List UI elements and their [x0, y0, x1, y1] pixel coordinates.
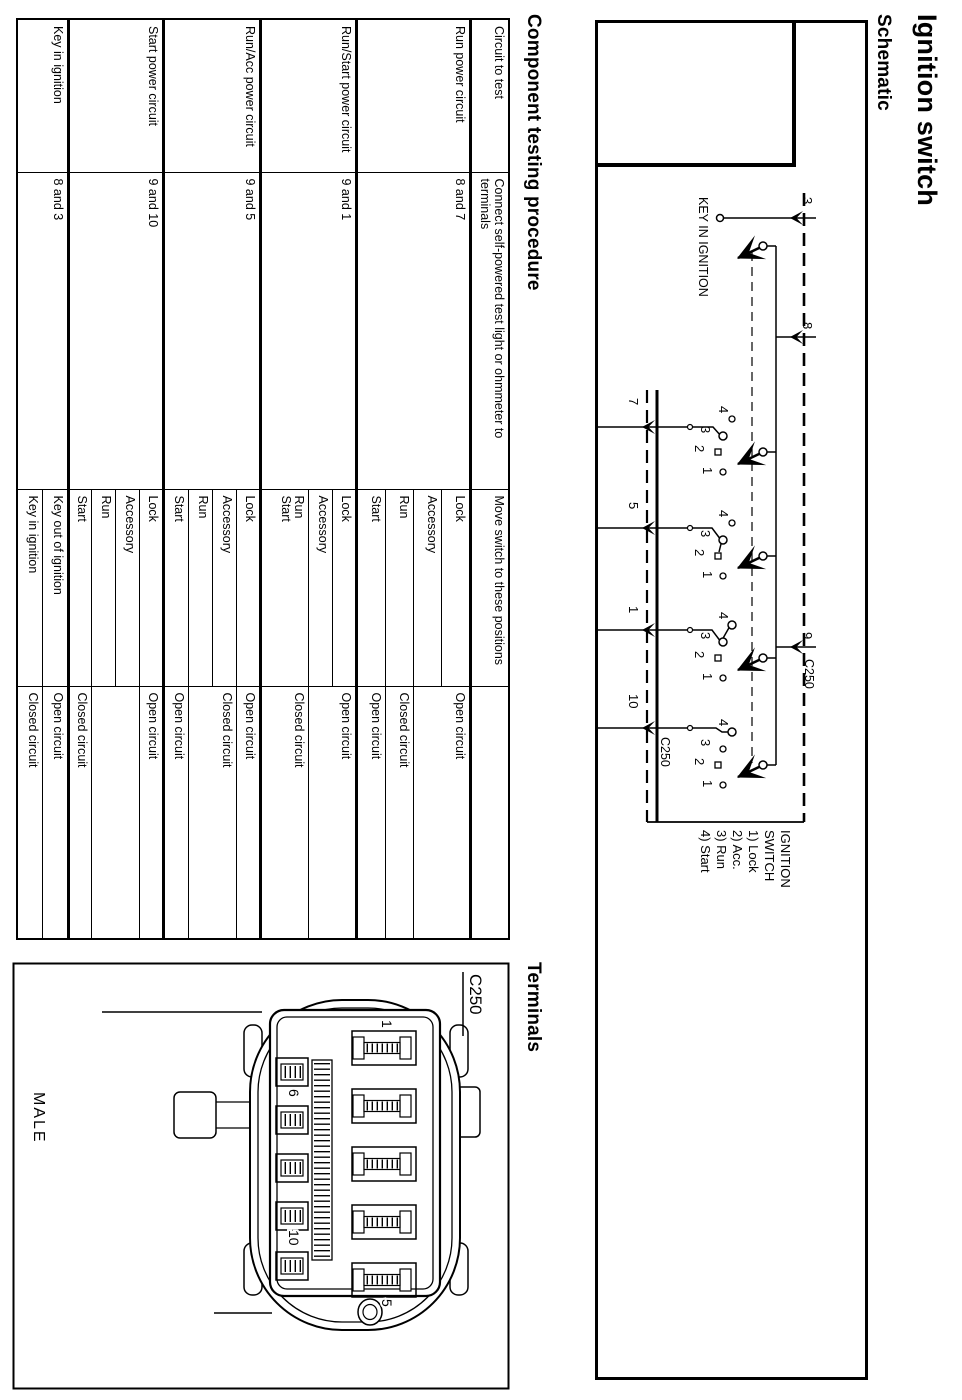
- position-cell: Accessory: [213, 489, 237, 686]
- ignition-switch-schematic: 3 8 9 C250 KEY IN IGNITION 7: [595, 20, 868, 1380]
- switch-wafer-run: 7 4 3 2 1: [597, 398, 767, 475]
- result-cell: Open circuit: [357, 686, 386, 939]
- circuit-cell: Run/Acc power circuit: [164, 19, 261, 172]
- terminal-5-label: 5: [626, 502, 641, 509]
- result-cell: Open circuit: [237, 686, 261, 939]
- contact-1-label: 1: [700, 571, 715, 578]
- contact-2-label: 2: [692, 758, 707, 765]
- key-in-ignition-label: KEY IN IGNITION: [696, 197, 710, 297]
- position-line: Run: [292, 496, 306, 681]
- result-cell: Closed circuit: [386, 686, 414, 939]
- contact-4-label: 4: [716, 719, 731, 726]
- gender-label: MALE: [30, 1092, 47, 1144]
- terminal-3: 3: [717, 197, 817, 225]
- internal-bus: [767, 246, 776, 765]
- position-cell: Key in ignition: [17, 489, 43, 686]
- switch-wafer-run-start: 1 4 3 2 1: [597, 606, 767, 681]
- circuit-cell: Run/Start power circuit: [261, 19, 357, 172]
- position-line: Start: [278, 496, 292, 681]
- legend-start: 4) Start: [698, 830, 713, 873]
- legend-acc: 2) Acc.: [730, 830, 745, 870]
- result-cell: Open circuit: [140, 686, 164, 939]
- switch-position-legend: IGNITION SWITCH 1) Lock 2) Acc. 3) Run 4…: [698, 830, 793, 888]
- contact-2-label: 2: [692, 445, 707, 452]
- connector-label-bottom: C250: [658, 737, 672, 767]
- position-cell: Key out of ignition: [43, 489, 69, 686]
- position-cell: Run: [92, 489, 116, 686]
- contact-2-label: 2: [692, 651, 707, 658]
- col-header-circuit: Circuit to test: [471, 19, 509, 172]
- result-cell: Closed circuit: [17, 686, 43, 939]
- terminals-cell: 9 and 1: [261, 172, 357, 489]
- terminal-8-label: 8: [800, 322, 815, 329]
- terminal-9: 9 C250: [776, 632, 816, 689]
- switch-wafer-run-acc: 5 4 3 2 1: [597, 502, 767, 579]
- component-testing-table: Circuit to test Connect self-powered tes…: [16, 18, 510, 940]
- feed-wire: [597, 20, 794, 165]
- result-cell: Open circuit: [164, 686, 189, 939]
- legend-line: SWITCH: [762, 830, 777, 881]
- terminal-center-band: [312, 1060, 332, 1260]
- pin-5-label: 5: [379, 1299, 395, 1307]
- position-cell: Lock: [333, 489, 357, 686]
- contact-4-label: 4: [716, 406, 731, 413]
- col-header-result: [471, 686, 509, 939]
- position-cell: Accessory: [414, 489, 442, 686]
- contact-3-label: 3: [698, 632, 713, 639]
- terminals-cell: 8 and 3: [17, 172, 69, 489]
- circuit-cell: Key in ignition: [17, 19, 69, 172]
- position-cell: Start: [164, 489, 189, 686]
- terminal-1-label: 1: [626, 606, 641, 613]
- result-cell: [92, 686, 140, 939]
- position-cell: Start: [69, 489, 92, 686]
- circuit-cell: Start power circuit: [69, 19, 164, 172]
- contact-4-label: 4: [716, 612, 731, 619]
- legend-lock: 1) Lock: [746, 830, 761, 873]
- terminal-3-label: 3: [800, 197, 815, 204]
- result-cell: Closed circuit: [261, 686, 309, 939]
- connector-label-top: C250: [802, 659, 816, 689]
- pin-6-label: 6: [286, 1089, 302, 1097]
- position-cell: Run: [189, 489, 213, 686]
- manual-sheet: Ignition switch Schematic Component test…: [0, 0, 962, 1400]
- col-header-terminals: Connect self-powered test light or ohmme…: [471, 172, 509, 489]
- terminals-heading: Terminals: [522, 962, 544, 1052]
- schematic-heading: Schematic: [872, 14, 894, 111]
- page-title: Ignition switch: [911, 14, 942, 206]
- terminals-connector-view: C250: [12, 962, 510, 1390]
- result-cell: Open circuit: [414, 686, 471, 939]
- terminals-cell: 9 and 5: [164, 172, 261, 489]
- contact-3-label: 3: [698, 739, 713, 746]
- contact-1-label: 1: [700, 673, 715, 680]
- position-cell: Lock: [442, 489, 471, 686]
- position-cell: Accessory: [309, 489, 333, 686]
- terminal-9-label: 9: [800, 632, 815, 639]
- position-cell: Lock: [237, 489, 261, 686]
- col-header-positions: Move switch to these positions: [471, 489, 509, 686]
- svg-text:C250: C250: [466, 974, 485, 1015]
- pin-10-label: 10: [286, 1230, 302, 1246]
- key-in-ignition-switch: KEY IN IGNITION: [696, 197, 767, 297]
- result-cell: Closed circuit: [189, 686, 237, 939]
- contact-1-label: 1: [700, 467, 715, 474]
- testing-procedure-heading: Component testing procedure: [522, 14, 544, 291]
- terminals-cell: 8 and 7: [357, 172, 471, 489]
- switch-wafer-start: 10 C250 4 3 2 1: [597, 694, 767, 788]
- position-cell: Start: [357, 489, 386, 686]
- scanned-manual-page: { "page": { "title": "Ignition switch", …: [0, 0, 962, 1400]
- legend-line: IGNITION: [778, 830, 793, 888]
- contact-3-label: 3: [698, 426, 713, 433]
- result-cell: Closed circuit: [69, 686, 92, 939]
- terminal-10-label: 10: [626, 694, 641, 708]
- position-cell: Run: [386, 489, 414, 686]
- contact-1-label: 1: [700, 780, 715, 787]
- terminals-cell: 9 and 10: [69, 172, 164, 489]
- contact-2-label: 2: [692, 549, 707, 556]
- result-cell: Open circuit: [43, 686, 69, 939]
- pin-1-label: 1: [379, 1020, 395, 1028]
- position-cell: Lock: [140, 489, 164, 686]
- connector-c250-label: C250: [463, 972, 485, 1036]
- terminal-8: 8: [776, 322, 816, 344]
- contact-4-label: 4: [716, 510, 731, 517]
- contact-3-label: 3: [698, 530, 713, 537]
- terminal-7-label: 7: [626, 398, 641, 405]
- circuit-cell: Run power circuit: [357, 19, 471, 172]
- position-cell: Run Start: [261, 489, 309, 686]
- position-cell: Accessory: [116, 489, 140, 686]
- result-cell: Open circuit: [309, 686, 357, 939]
- legend-run: 3) Run: [714, 830, 729, 869]
